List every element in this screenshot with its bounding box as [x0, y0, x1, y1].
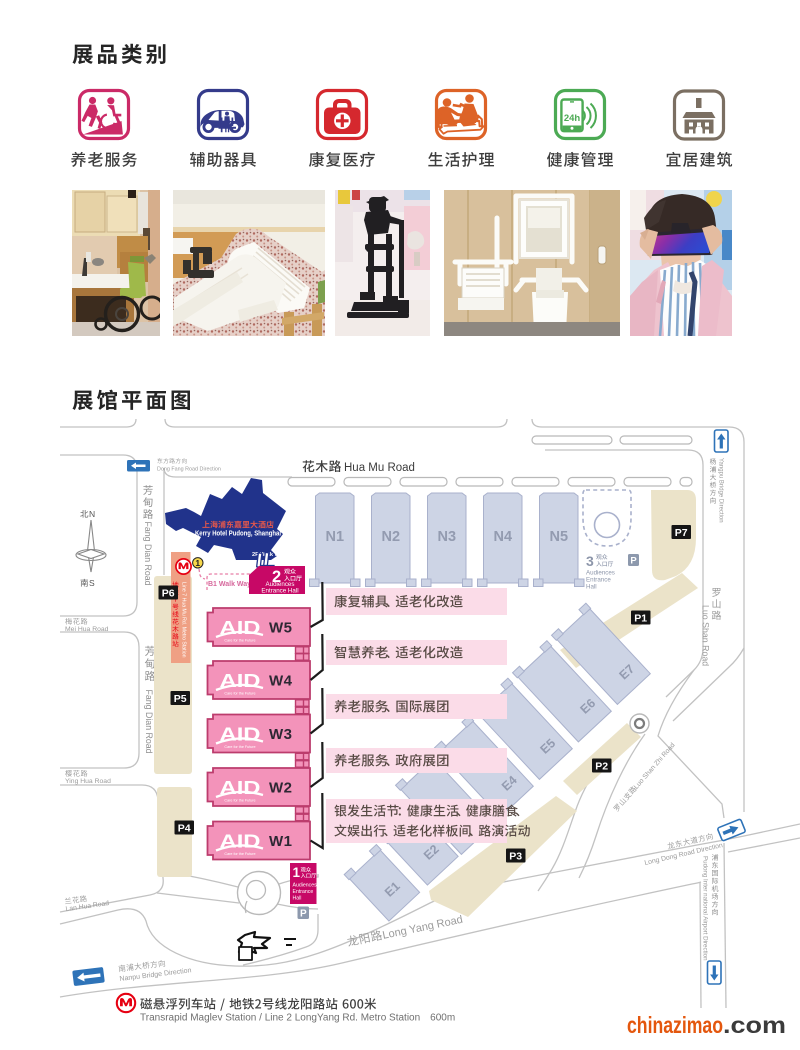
svg-text:Ying Hua Road: Ying Hua Road: [65, 778, 111, 785]
svg-text:S: S: [89, 578, 95, 588]
svg-text:Mei Hua Road: Mei Hua Road: [65, 626, 109, 633]
svg-text:24h: 24h: [564, 113, 581, 124]
svg-text:N1: N1: [326, 529, 345, 545]
svg-text:Audiences: Audiences: [293, 883, 318, 889]
svg-text:Pudong Inter national Airport: Pudong Inter national Airport Direction: [702, 856, 709, 961]
svg-text:1: 1: [195, 558, 200, 568]
svg-text:W4: W4: [269, 673, 293, 690]
svg-text:W5: W5: [269, 620, 293, 637]
svg-text:Care for the Future: Care for the Future: [224, 852, 255, 856]
svg-text:Care for the Future: Care for the Future: [224, 692, 255, 696]
svg-text:W3: W3: [269, 726, 293, 743]
svg-text:Care for the Future: Care for the Future: [224, 799, 255, 803]
svg-text:Entrance: Entrance: [293, 889, 314, 895]
svg-text:P1: P1: [634, 612, 647, 624]
svg-text:P4: P4: [178, 822, 191, 834]
svg-text:Yangpu Bridge Direction: Yangpu Bridge Direction: [718, 458, 724, 523]
svg-text:Kerry Hotel Pudong, Shanghai: Kerry Hotel Pudong, Shanghai: [195, 531, 281, 538]
svg-text:Care for the Future: Care for the Future: [224, 639, 255, 643]
svg-text:Lan Hua Road: Lan Hua Road: [65, 900, 110, 913]
svg-text:P2: P2: [595, 760, 608, 772]
svg-text:Hua Mu Road: Hua Mu Road: [344, 462, 415, 474]
svg-text:Dong Fang Road Direction: Dong Fang Road Direction: [157, 467, 221, 473]
svg-text:3: 3: [586, 553, 594, 569]
svg-text:Luo Shan Zhi Road: Luo Shan Zhi Road: [633, 742, 677, 791]
svg-text:Hall: Hall: [293, 896, 302, 902]
svg-text:Hall: Hall: [586, 584, 597, 591]
svg-text:Line 7 Hua Mu Rd. Metro Statio: Line 7 Hua Mu Rd. Metro Station: [181, 582, 187, 658]
svg-text:.com: .com: [723, 1012, 786, 1038]
svg-text:N5: N5: [550, 529, 569, 545]
svg-text:N4: N4: [494, 529, 513, 545]
svg-text:Care for the Future: Care for the Future: [224, 745, 255, 749]
svg-text:B1 Walk Way: B1 Walk Way: [208, 581, 251, 588]
svg-text:Fang Dian Road: Fang Dian Road: [143, 522, 153, 586]
svg-text:Long Dong Road Direction: Long Dong Road Direction: [644, 842, 724, 867]
svg-text:P: P: [630, 556, 637, 567]
svg-text:1: 1: [293, 865, 301, 880]
svg-text:chinazimao: chinazimao: [627, 1012, 723, 1038]
svg-text:P7: P7: [675, 527, 688, 539]
svg-text:Transrapid Maglev Station / Li: Transrapid Maglev Station / Line 2 LongY…: [140, 1013, 455, 1024]
svg-text:N: N: [89, 509, 95, 519]
svg-text:N2: N2: [382, 529, 401, 545]
svg-text:N3: N3: [438, 529, 457, 545]
svg-text:W2: W2: [269, 780, 293, 797]
svg-text:Fang Dian Road: Fang Dian Road: [144, 690, 154, 754]
svg-text:P: P: [300, 908, 307, 919]
svg-text:Luo Shan Road: Luo Shan Road: [701, 605, 711, 666]
svg-text:Entrance Hall: Entrance Hall: [261, 588, 298, 595]
svg-text:P6: P6: [162, 587, 175, 599]
svg-text:Nanpu Bridge Direction: Nanpu Bridge Direction: [119, 967, 192, 983]
svg-text:P5: P5: [174, 693, 187, 705]
svg-text:Entrance: Entrance: [586, 577, 611, 584]
svg-text:Audiences: Audiences: [586, 570, 615, 577]
svg-text:W1: W1: [269, 833, 293, 850]
svg-text:P3: P3: [509, 850, 522, 862]
